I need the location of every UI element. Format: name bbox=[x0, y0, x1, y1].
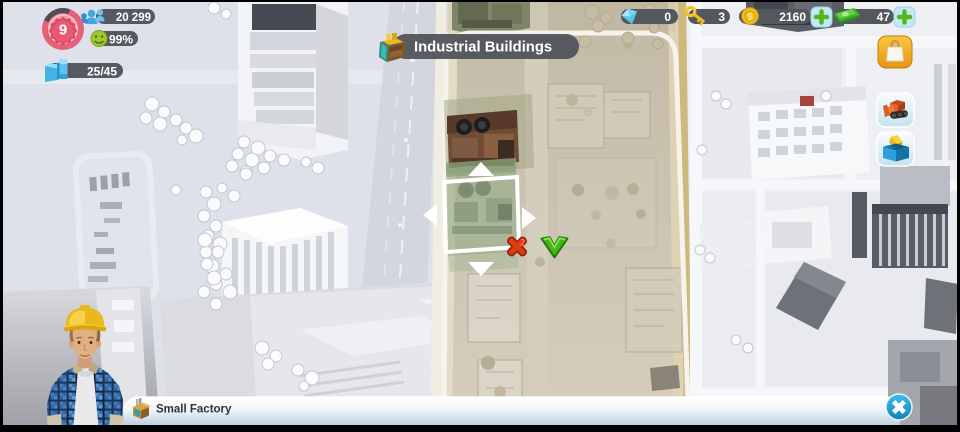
svg-text:Industrial Buildings: Industrial Buildings bbox=[414, 40, 552, 56]
svg-text:Small Factory: Small Factory bbox=[156, 404, 232, 416]
svg-text:3: 3 bbox=[718, 10, 725, 24]
svg-text:20 299: 20 299 bbox=[116, 12, 151, 24]
svg-text:9: 9 bbox=[59, 22, 67, 39]
svg-text:2160: 2160 bbox=[779, 10, 806, 24]
svg-text:99%: 99% bbox=[109, 33, 133, 47]
svg-text:0: 0 bbox=[664, 10, 671, 24]
svg-text:25/45: 25/45 bbox=[87, 65, 117, 79]
svg-text:47: 47 bbox=[877, 10, 891, 24]
svg-text:$: $ bbox=[747, 11, 753, 23]
